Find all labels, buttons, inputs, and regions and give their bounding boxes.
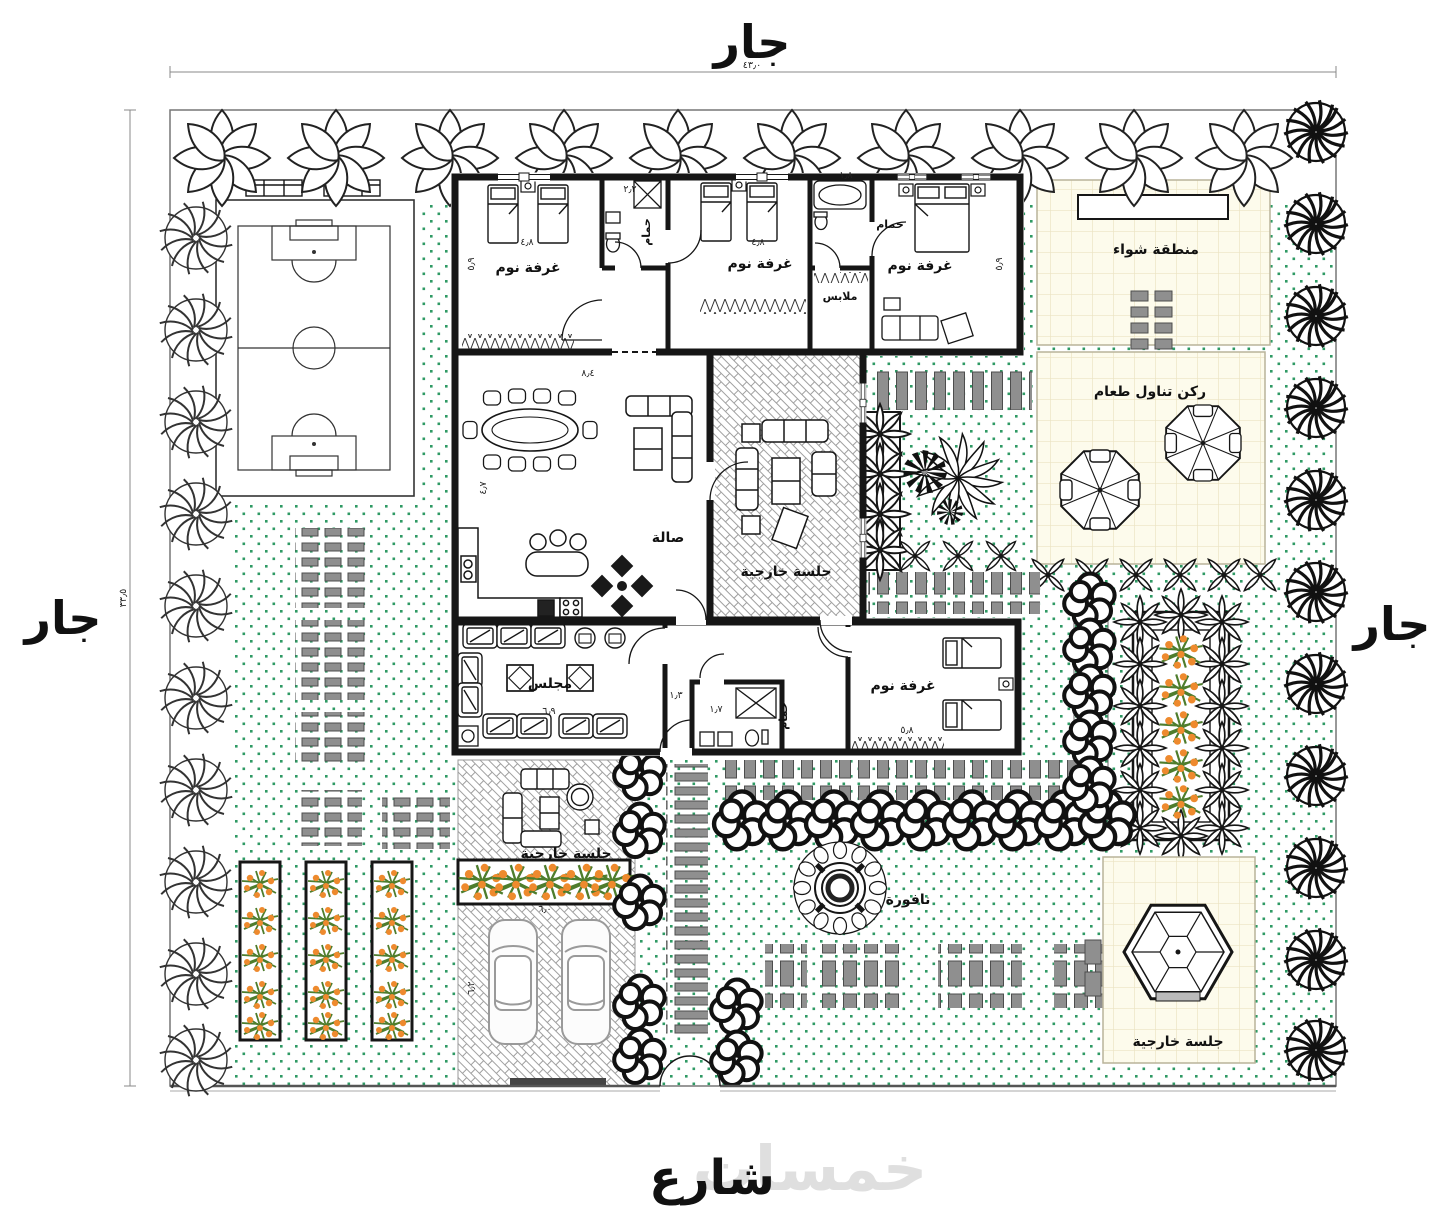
label-bath-2: حمام (876, 218, 904, 231)
label-bedroom-2: غرفة نوم (727, 256, 792, 272)
neighbor-label-right: جار (1352, 597, 1431, 651)
dim-bed1-w: ٤٫٨ (520, 237, 533, 248)
bbq-grill-table (1078, 195, 1228, 219)
plaza (458, 760, 635, 1086)
dim-bed2-w: ٤٫٨ (751, 237, 764, 248)
label-bbq: منطقة شواء (1113, 242, 1199, 258)
site-plan-canvas: جار جار جار خمسات شارع ٤٣٫٠ ٣٣٫٥ غرفة نو… (0, 0, 1440, 1209)
dim-hall-d: ٤٫٧ (478, 481, 489, 494)
dim-majlis: ٦٫٩ (542, 706, 555, 717)
dim-garage-d: ٦٫٢ (466, 981, 477, 994)
label-bath-1: حمام (640, 218, 653, 246)
wardrobe (700, 299, 806, 314)
label-dining-corner: ركن تناول طعام (1094, 384, 1206, 400)
site-height-dim: ٣٣٫٥ (118, 589, 129, 607)
umbrella-table-icon (1060, 450, 1140, 530)
dim-garage-w: ٦٫٠ (538, 904, 551, 915)
dim-bed4: ٥٫٨ (900, 725, 913, 736)
label-bedroom-3: غرفة نوم (887, 258, 952, 274)
fountain-icon (794, 842, 887, 935)
label-outdoor-seating-2: جلسة خارجية (520, 846, 611, 862)
label-majlis: مجلس (528, 676, 572, 692)
tree-icon (174, 110, 270, 206)
closet-shelves (814, 272, 868, 283)
dim-corridor: ١٫٣ (669, 690, 682, 701)
label-bedroom-4: غرفة نوم (870, 678, 935, 694)
site-width-dim: ٤٣٫٠ (743, 60, 761, 71)
label-bedroom-1: غرفة نوم (495, 260, 560, 276)
stepping-stones (1128, 290, 1176, 354)
tree-icon (1086, 110, 1182, 206)
dim-wc: ١٫٧ (709, 704, 722, 715)
label-outdoor-seating-3: جلسة خارجية (1132, 1034, 1223, 1050)
tree-icon (288, 110, 384, 206)
gazebo-area (1085, 857, 1255, 1063)
slat-path (868, 572, 1040, 614)
window-icon (498, 173, 550, 182)
tree-icon (1196, 110, 1292, 206)
neighbor-label-left: جار (23, 591, 102, 645)
label-fountain: نافورة (886, 892, 931, 908)
dim-hall-w: ٨٫٤ (581, 368, 594, 379)
corner-sofa (626, 396, 692, 482)
slat-path (872, 366, 1032, 410)
window-icon (736, 173, 788, 182)
label-wc: حمام (777, 702, 790, 730)
dim-bath1: ٢٫٢ (623, 184, 636, 195)
window-icon (860, 384, 867, 423)
umbrella-table-icon (1165, 405, 1241, 481)
entry-walkway (666, 764, 708, 1036)
football-field (216, 200, 414, 496)
dim-bed3-d: ٥٫٩ (994, 257, 1005, 270)
stepping-stone (1085, 972, 1101, 996)
dim-bed1-d: ٥٫٩ (466, 257, 477, 270)
label-hall: صالة (652, 530, 685, 546)
wardrobe (852, 737, 944, 749)
left-flower-beds (240, 862, 412, 1040)
site-plan-drawing: جار جار جار خمسات شارع ٤٣٫٠ ٣٣٫٥ غرفة نو… (0, 0, 1440, 1209)
stepping-stone (1085, 940, 1101, 964)
window-icon (860, 519, 867, 558)
window-icon (962, 175, 991, 180)
wardrobe (462, 334, 574, 350)
label-closet: ملابس (823, 290, 858, 303)
label-outdoor-seating-1: جلسة خارجية (740, 564, 831, 580)
street-label: شارع (649, 1150, 775, 1206)
car-icon (489, 920, 537, 1044)
car-icon (562, 920, 610, 1044)
dim-bath2: ١٫٨ (839, 170, 852, 181)
window-icon (898, 175, 927, 180)
